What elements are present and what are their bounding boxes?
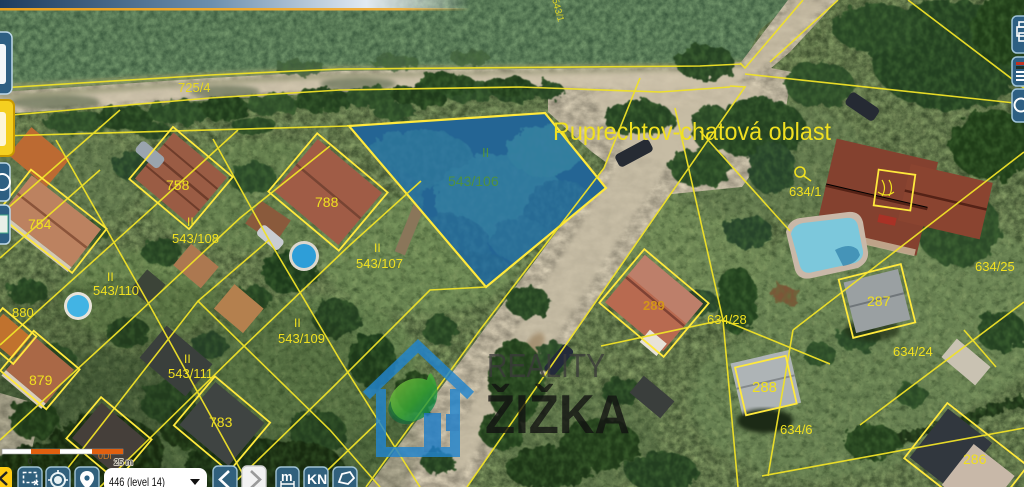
svg-text:II: II xyxy=(294,316,301,330)
svg-text:0: 0 xyxy=(28,457,33,466)
svg-text:II: II xyxy=(482,145,489,160)
svg-text:287: 287 xyxy=(867,293,891,309)
svg-text:754: 754 xyxy=(28,216,52,232)
svg-text:543/107: 543/107 xyxy=(356,256,403,271)
svg-text:543/110: 543/110 xyxy=(93,283,139,298)
svg-text:634/24: 634/24 xyxy=(893,344,933,359)
svg-text:758: 758 xyxy=(166,177,190,193)
svg-text:II: II xyxy=(107,270,114,284)
svg-text:634/6: 634/6 xyxy=(780,422,813,437)
svg-text:725/4: 725/4 xyxy=(178,80,211,95)
svg-text:880: 880 xyxy=(12,305,34,320)
svg-text:788: 788 xyxy=(315,194,339,210)
svg-text:289: 289 xyxy=(643,298,665,313)
svg-text:Ruprechtov-chatová oblast: Ruprechtov-chatová oblast xyxy=(553,118,831,146)
svg-text:II: II xyxy=(187,215,194,229)
svg-text:286: 286 xyxy=(963,451,987,467)
svg-text:288: 288 xyxy=(752,379,777,396)
svg-text:634/25: 634/25 xyxy=(975,259,1015,274)
svg-text:543/106: 543/106 xyxy=(448,173,499,189)
svg-text:543/111: 543/111 xyxy=(168,366,213,381)
svg-text:REALITY: REALITY xyxy=(487,347,605,384)
svg-text:446 (level 14): 446 (level 14) xyxy=(109,475,165,487)
svg-text:879: 879 xyxy=(29,372,53,388)
svg-text:634/1: 634/1 xyxy=(789,184,822,199)
svg-text:m: m xyxy=(281,469,293,484)
svg-text:ŽIŽKA: ŽIŽKA xyxy=(485,383,630,445)
svg-text:634/28: 634/28 xyxy=(707,312,747,327)
svg-text:KN: KN xyxy=(307,471,327,487)
svg-text:II: II xyxy=(184,352,191,366)
svg-text:II: II xyxy=(374,241,381,255)
svg-text:25 m: 25 m xyxy=(114,457,133,467)
svg-text:543/108: 543/108 xyxy=(172,231,219,246)
svg-text:543/109: 543/109 xyxy=(278,331,325,346)
svg-text:783: 783 xyxy=(209,414,233,430)
